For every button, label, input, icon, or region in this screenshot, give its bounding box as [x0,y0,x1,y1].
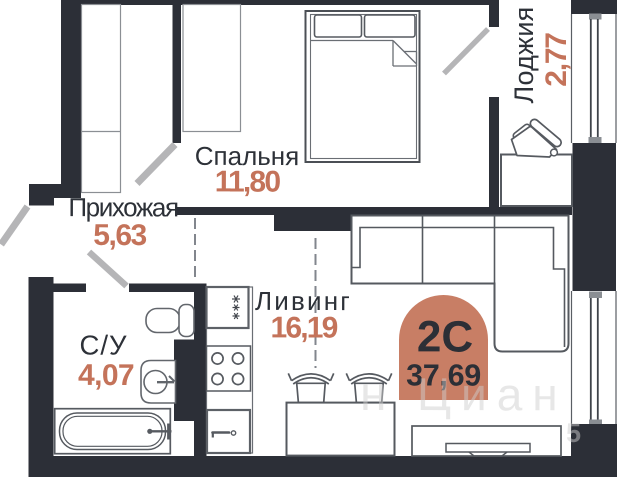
svg-text:Прихожая: Прихожая [68,192,178,222]
svg-text:Циан: Циан [417,368,568,420]
svg-text:11,80: 11,80 [215,165,281,198]
svg-text:2С: 2С [417,312,473,361]
svg-text:16,19: 16,19 [270,311,337,344]
svg-text:С/У: С/У [79,329,127,360]
svg-text:н: н [360,368,387,421]
svg-text:4,07: 4,07 [78,359,134,392]
svg-text:2,77: 2,77 [540,33,573,87]
svg-text:Лоджия: Лоджия [509,7,539,104]
svg-text:5,63: 5,63 [93,219,146,252]
svg-text:5: 5 [566,418,581,448]
